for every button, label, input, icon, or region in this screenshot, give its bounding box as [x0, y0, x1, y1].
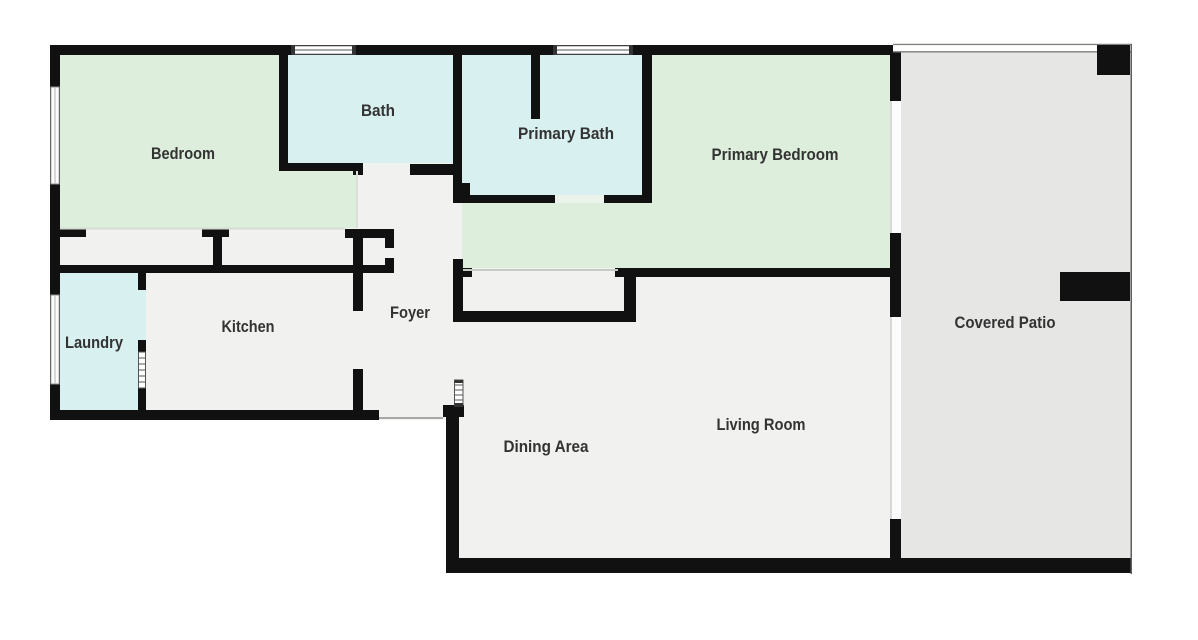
svg-text:Kitchen: Kitchen: [222, 317, 275, 336]
svg-text:Primary Bath: Primary Bath: [518, 124, 614, 143]
svg-text:Covered Patio: Covered Patio: [955, 313, 1056, 332]
svg-text:Foyer: Foyer: [390, 303, 430, 322]
svg-text:Living Room: Living Room: [717, 415, 806, 434]
svg-text:Primary Bedroom: Primary Bedroom: [712, 145, 839, 164]
svg-text:Dining Area: Dining Area: [504, 437, 590, 456]
svg-text:Bedroom: Bedroom: [151, 144, 215, 163]
svg-text:Bath: Bath: [361, 101, 395, 120]
svg-text:Laundry: Laundry: [65, 333, 124, 352]
